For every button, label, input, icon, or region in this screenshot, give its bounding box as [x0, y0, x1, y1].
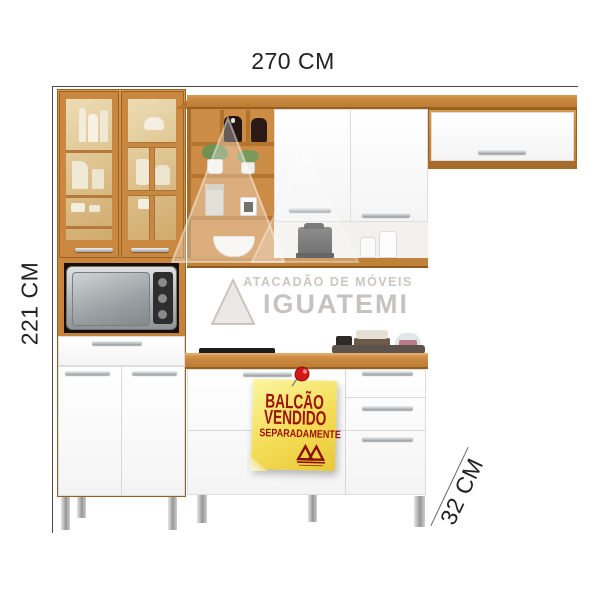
note-logo-icon	[295, 442, 328, 468]
height-dimension-line	[52, 86, 53, 533]
glass-muntin-horizontal	[128, 191, 176, 195]
counter-drawer-handle	[362, 371, 413, 375]
shelf	[190, 216, 274, 220]
glass-door-handle	[75, 248, 113, 252]
cake-top	[356, 330, 388, 339]
counter-seam	[345, 397, 426, 398]
teapot	[144, 117, 164, 130]
canister-lid	[205, 184, 224, 190]
shelf	[190, 142, 274, 146]
note-line-3: SEPARADAMENTE	[259, 426, 328, 442]
counter-leg	[414, 496, 425, 527]
glass-shelf	[66, 195, 112, 198]
glass-door-handle	[131, 248, 169, 252]
microwave-knob	[158, 278, 167, 287]
wall-cabinet-door-left	[274, 109, 351, 222]
counter-drawer-handle	[243, 372, 292, 376]
jar	[155, 165, 170, 185]
cabinet-leg	[61, 497, 70, 530]
shelf	[190, 174, 274, 178]
door-handle	[65, 371, 110, 375]
counter-leg	[197, 495, 207, 523]
white-pot	[379, 231, 397, 258]
note-line-2: VENDIDO	[264, 409, 325, 428]
cabinet-leg	[168, 497, 177, 530]
microwave-knob	[158, 310, 167, 319]
door-seam	[121, 366, 122, 496]
bottle	[100, 110, 108, 142]
wine-bottle	[251, 118, 267, 142]
microwave-knob	[158, 294, 167, 303]
product-image: ATACADÃO DE MÓVEIS IGUATEMI BALCÃO VENDI…	[0, 0, 600, 600]
width-dimension-line	[52, 86, 578, 87]
wine-bottle-cap	[231, 118, 235, 123]
white-pot	[360, 237, 376, 258]
glass-muntin-horizontal	[128, 143, 176, 147]
espresso-machine	[298, 227, 332, 255]
sticky-note: BALCÃO VENDIDO SEPARADAMENTE	[251, 379, 337, 471]
counter-seam	[345, 369, 346, 495]
wall-cabinet-handle	[362, 213, 410, 217]
width-dimension-label: 270 CM	[228, 48, 358, 75]
niche-bottom-shelf	[187, 258, 428, 268]
bottle	[79, 108, 86, 142]
cup	[71, 203, 85, 212]
glass-shelf	[66, 150, 112, 153]
plant-pot	[207, 159, 223, 174]
bottle	[88, 114, 98, 142]
cup	[89, 205, 100, 212]
depth-dimension-label: 32 CM	[428, 441, 495, 543]
microwave	[66, 266, 177, 330]
jar	[92, 169, 104, 189]
drawer-handle	[92, 341, 142, 345]
pitcher	[72, 161, 88, 189]
bottle	[136, 159, 149, 185]
wall-cabinet-door-right	[350, 109, 428, 222]
glass-shelf	[66, 226, 112, 229]
door-handle	[132, 371, 177, 375]
wine-rack-divider	[246, 110, 250, 142]
cabinet-leg	[77, 497, 86, 518]
glass-pane-left	[66, 99, 112, 240]
watermark-text-small: ATACADÃO DE MÓVEIS	[228, 275, 428, 289]
upper-top-panel	[187, 95, 577, 109]
espresso-machine-top	[304, 223, 324, 229]
note-corner-curl	[250, 456, 268, 471]
canister-window	[244, 202, 253, 212]
glass-pane-right	[128, 99, 176, 240]
height-dimension-label: 221 CM	[17, 254, 44, 354]
wall-cabinet-right-handle	[478, 150, 526, 154]
wall-cabinet-handle	[289, 208, 331, 212]
counter-drawer-handle	[362, 437, 413, 441]
wall-cabinet-right-bottom	[428, 161, 577, 169]
pushpin-icon	[288, 364, 314, 390]
microwave-door	[72, 272, 150, 326]
counter-seam	[345, 430, 426, 431]
counter-leg	[308, 495, 317, 522]
watermark-text-large: IGUATEMI	[230, 289, 442, 320]
plant-pot	[241, 162, 255, 174]
counter-drawer-handle	[362, 406, 413, 410]
